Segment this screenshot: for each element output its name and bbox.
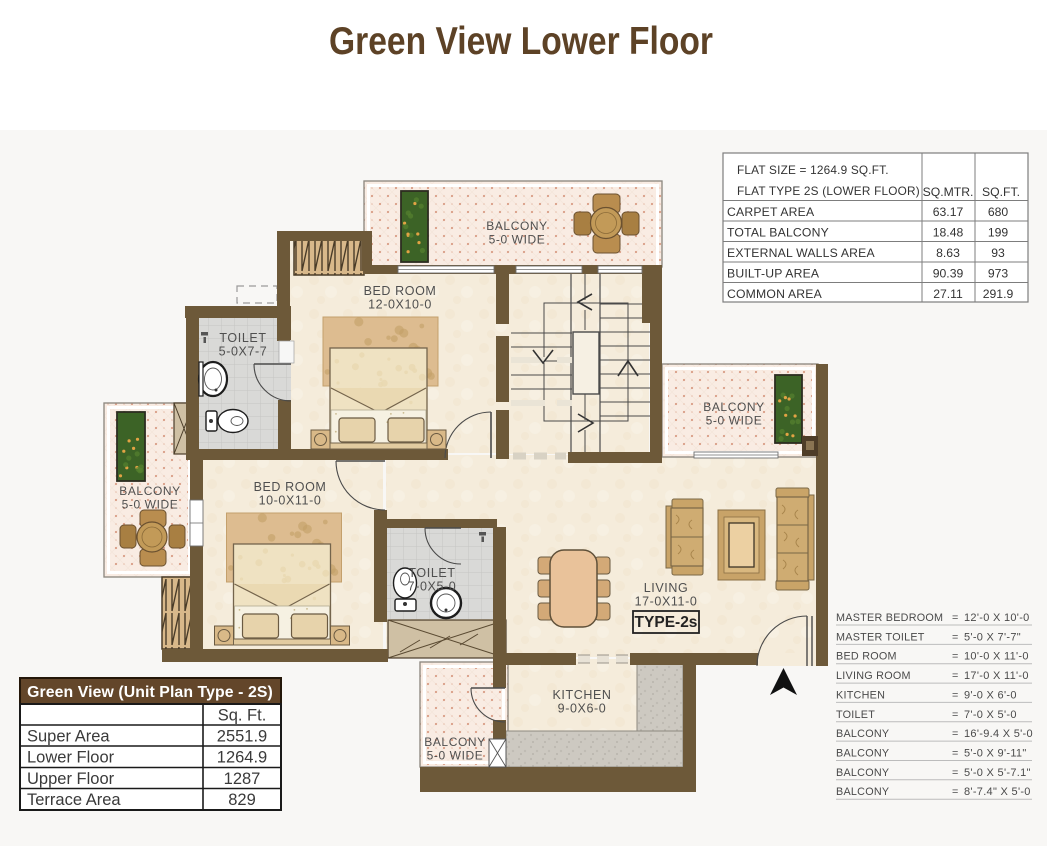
svg-text:SQ.MTR.: SQ.MTR. [923, 185, 974, 199]
svg-text:BED ROOM: BED ROOM [836, 651, 897, 663]
svg-text:93: 93 [991, 246, 1005, 260]
svg-text:KITCHEN: KITCHEN [836, 689, 885, 701]
svg-text:=: = [952, 631, 958, 643]
svg-text:16'-9.4 X 5'-0: 16'-9.4 X 5'-0 [964, 728, 1033, 740]
svg-text:BALCONY: BALCONY [424, 735, 486, 749]
svg-text:TOTAL BALCONY: TOTAL BALCONY [727, 226, 829, 240]
svg-text:Upper Floor: Upper Floor [27, 770, 115, 788]
svg-text:=: = [952, 728, 958, 740]
svg-text:=: = [952, 709, 958, 721]
svg-text:5-0 WIDE: 5-0 WIDE [122, 498, 179, 512]
svg-text:10'-0 X 11'-0: 10'-0 X 11'-0 [964, 651, 1029, 663]
svg-text:5-0 WIDE: 5-0 WIDE [427, 749, 484, 763]
svg-text:17'-0 X 11'-0: 17'-0 X 11'-0 [964, 670, 1029, 682]
svg-text:FLAT TYPE 2S (LOWER FLOOR): FLAT TYPE 2S (LOWER FLOOR) [737, 184, 920, 198]
svg-text:BALCONY: BALCONY [836, 767, 889, 779]
svg-text:Super Area: Super Area [27, 728, 110, 746]
svg-text:5'-0 X 9'-11": 5'-0 X 9'-11" [964, 748, 1027, 760]
svg-text:BALCONY: BALCONY [836, 748, 889, 760]
svg-text:63.17: 63.17 [933, 205, 964, 219]
svg-text:CARPET AREA: CARPET AREA [727, 205, 815, 219]
svg-text:TOILET: TOILET [836, 709, 875, 721]
svg-text:17-0X11-0: 17-0X11-0 [635, 595, 698, 609]
svg-text:COMMON AREA: COMMON AREA [727, 287, 823, 301]
svg-text:90.39: 90.39 [933, 267, 964, 281]
svg-text:12-0X10-0: 12-0X10-0 [368, 298, 432, 312]
svg-text:TOILET: TOILET [219, 331, 266, 345]
svg-text:2551.9: 2551.9 [217, 728, 267, 746]
svg-text:LIVING ROOM: LIVING ROOM [836, 670, 911, 682]
svg-text:9-0X6-0: 9-0X6-0 [558, 702, 607, 716]
svg-text:7-0X5-0: 7-0X5-0 [408, 580, 457, 594]
svg-text:5-0 WIDE: 5-0 WIDE [706, 414, 763, 428]
svg-text:TYPE-2s: TYPE-2s [635, 614, 698, 631]
svg-text:=: = [952, 689, 958, 701]
svg-text:199: 199 [988, 226, 1009, 240]
svg-text:5'-0 X 5'-7.1": 5'-0 X 5'-7.1" [964, 767, 1031, 779]
svg-text:5-0X7-7: 5-0X7-7 [219, 345, 268, 359]
svg-text:=: = [952, 670, 958, 682]
svg-text:SQ.FT.: SQ.FT. [982, 185, 1020, 199]
svg-text:18.48: 18.48 [933, 226, 964, 240]
svg-text:BALCONY: BALCONY [836, 786, 889, 798]
svg-text:LIVING: LIVING [644, 581, 689, 595]
svg-text:973: 973 [988, 267, 1009, 281]
svg-text:BALCONY: BALCONY [119, 484, 181, 498]
svg-text:BALCONY: BALCONY [703, 400, 765, 414]
svg-text:12'-0 X 10'-0: 12'-0 X 10'-0 [964, 612, 1030, 624]
svg-text:=: = [952, 748, 958, 760]
svg-text:1287: 1287 [224, 770, 261, 788]
svg-text:291.9: 291.9 [983, 287, 1014, 301]
svg-text:BUILT-UP AREA: BUILT-UP AREA [727, 267, 820, 281]
svg-text:KITCHEN: KITCHEN [552, 688, 611, 702]
svg-text:BALCONY: BALCONY [486, 219, 548, 233]
svg-text:=: = [952, 651, 958, 663]
svg-text:Green View Lower Floor: Green View Lower Floor [329, 20, 713, 63]
svg-text:829: 829 [228, 791, 256, 809]
svg-text:Lower Floor: Lower Floor [27, 749, 115, 767]
svg-text:Sq. Ft.: Sq. Ft. [218, 707, 267, 725]
svg-text:FLAT SIZE = 1264.9 SQ.FT.: FLAT SIZE = 1264.9 SQ.FT. [737, 163, 889, 177]
svg-text:BALCONY: BALCONY [836, 728, 889, 740]
svg-text:8'-7.4" X 5'-0: 8'-7.4" X 5'-0 [964, 786, 1031, 798]
svg-text:MASTER BEDROOM: MASTER BEDROOM [836, 612, 943, 624]
svg-text:=: = [952, 767, 958, 779]
svg-text:680: 680 [988, 205, 1009, 219]
svg-text:Green View (Unit Plan Type - 2: Green View (Unit Plan Type - 2S) [27, 684, 273, 701]
svg-text:TOILET: TOILET [408, 566, 455, 580]
svg-text:8.63: 8.63 [936, 246, 960, 260]
svg-text:7'-0 X 5'-0: 7'-0 X 5'-0 [964, 709, 1017, 721]
svg-text:27.11: 27.11 [933, 287, 963, 301]
svg-text:EXTERNAL WALLS AREA: EXTERNAL WALLS AREA [727, 246, 876, 260]
svg-text:1264.9: 1264.9 [217, 749, 267, 767]
svg-text:5-0 WIDE: 5-0 WIDE [489, 233, 546, 247]
svg-text:Terrace Area: Terrace Area [27, 791, 121, 809]
svg-text:9'-0 X 6'-0: 9'-0 X 6'-0 [964, 689, 1017, 701]
svg-text:5'-0 X 7'-7": 5'-0 X 7'-7" [964, 631, 1021, 643]
svg-text:MASTER TOILET: MASTER TOILET [836, 631, 925, 643]
svg-text:BED ROOM: BED ROOM [254, 480, 327, 494]
svg-text:=: = [952, 786, 958, 798]
svg-text:=: = [952, 612, 958, 624]
svg-text:BED ROOM: BED ROOM [364, 284, 437, 298]
svg-text:10-0X11-0: 10-0X11-0 [259, 494, 322, 508]
